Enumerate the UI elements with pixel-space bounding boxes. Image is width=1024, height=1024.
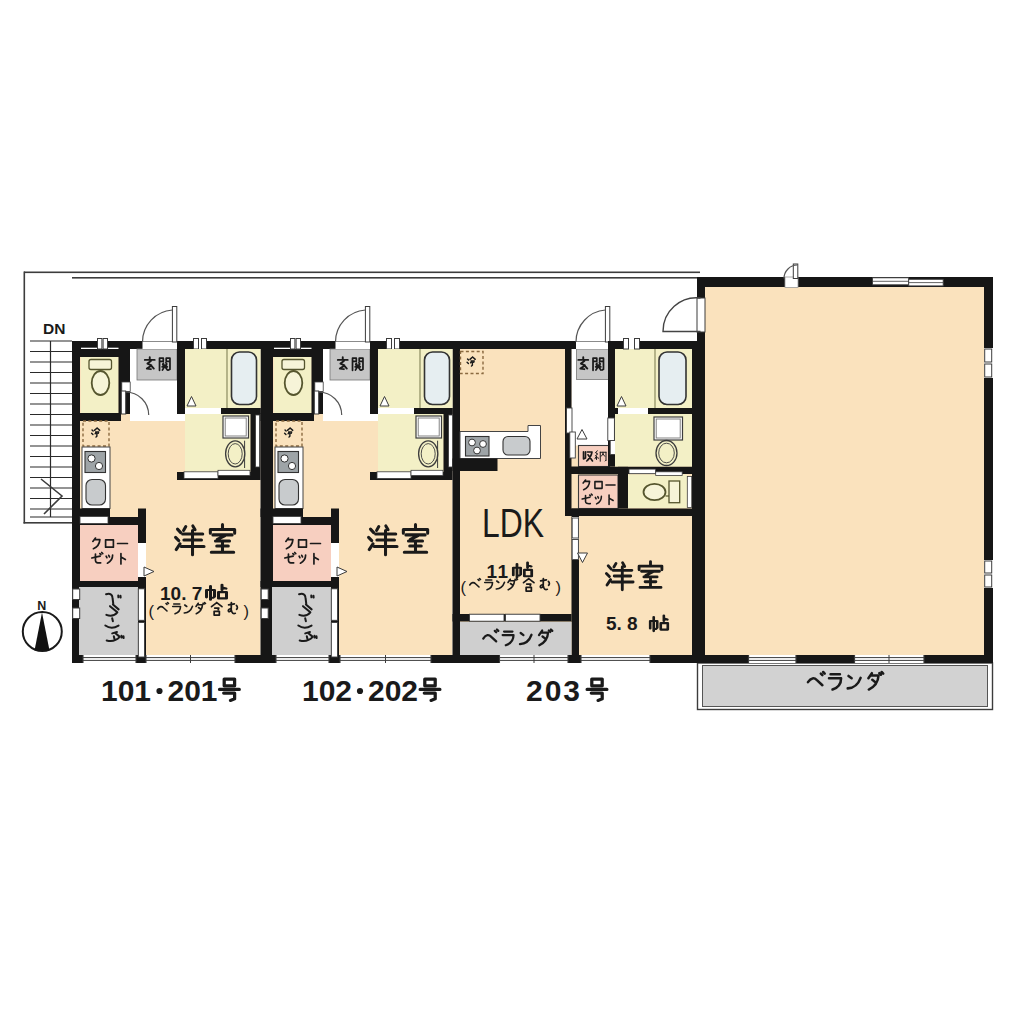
svg-text:N: N bbox=[37, 599, 46, 613]
svg-text:203: 203 bbox=[526, 674, 582, 707]
svg-text:101: 101 bbox=[101, 674, 151, 707]
svg-text:11: 11 bbox=[487, 561, 510, 582]
svg-text:(: ( bbox=[149, 602, 155, 620]
svg-text:(: ( bbox=[461, 578, 467, 596]
svg-text:5. 8: 5. 8 bbox=[606, 613, 638, 634]
svg-text:): ) bbox=[556, 578, 562, 596]
svg-text:DN: DN bbox=[43, 320, 65, 337]
svg-text:202: 202 bbox=[368, 674, 418, 707]
svg-text:10. 7: 10. 7 bbox=[160, 583, 202, 604]
svg-text:201: 201 bbox=[168, 674, 218, 707]
svg-text:102: 102 bbox=[302, 674, 352, 707]
svg-text:LDK: LDK bbox=[482, 500, 544, 546]
svg-text:): ) bbox=[244, 602, 250, 620]
